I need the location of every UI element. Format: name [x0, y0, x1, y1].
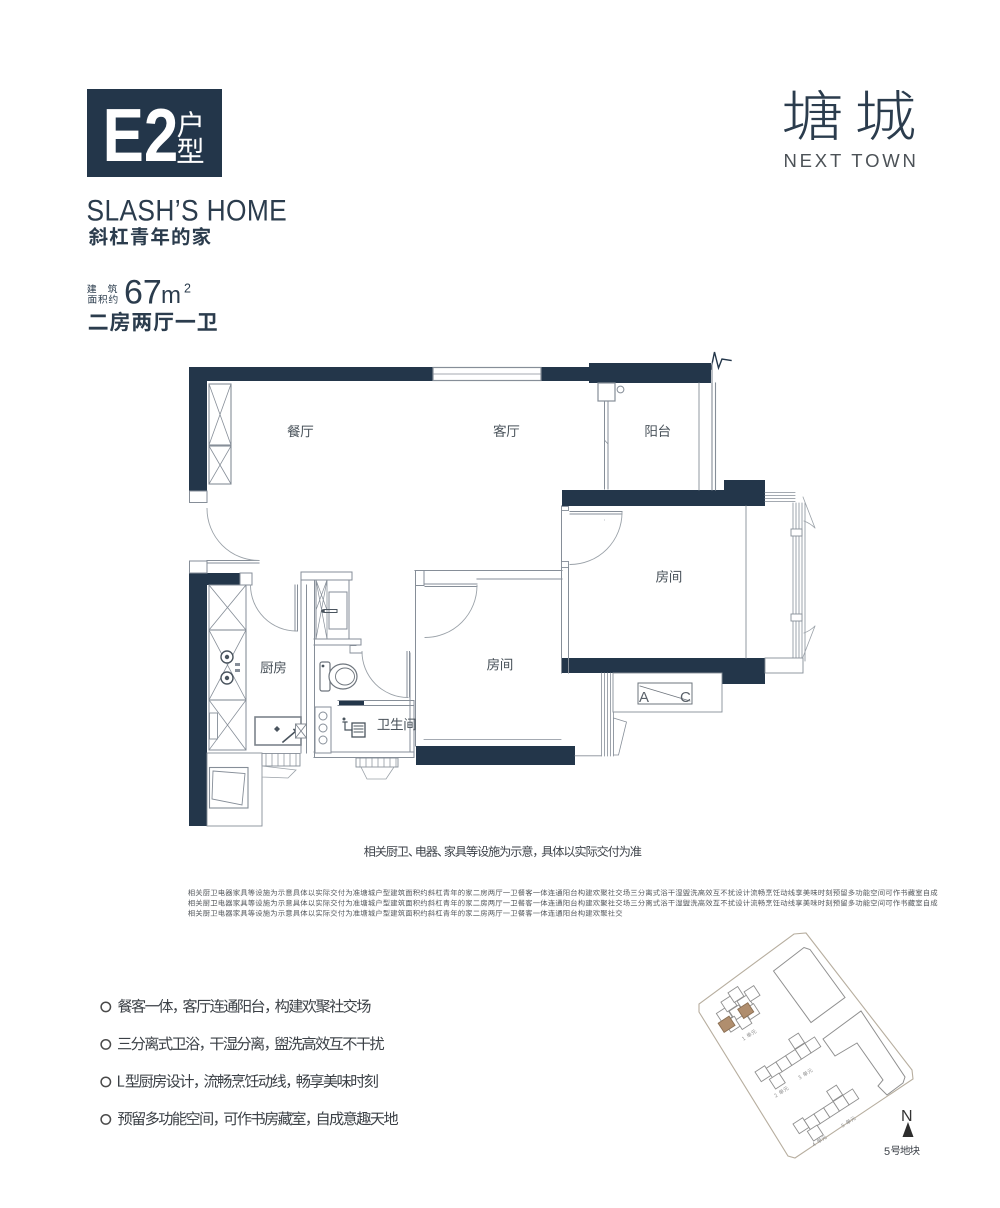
svg-text:E2: E2	[103, 94, 179, 178]
svg-text:5: 5	[884, 1146, 890, 1158]
svg-text:SLASH’S HOME: SLASH’S HOME	[87, 194, 288, 227]
svg-text:A: A	[639, 689, 649, 706]
svg-text:C: C	[680, 689, 691, 706]
svg-text:NEXT TOWN: NEXT TOWN	[784, 150, 919, 171]
svg-text:2: 2	[184, 282, 191, 296]
svg-text:N: N	[901, 1108, 913, 1125]
svg-text:m: m	[161, 282, 181, 309]
svg-text:67: 67	[124, 274, 162, 312]
